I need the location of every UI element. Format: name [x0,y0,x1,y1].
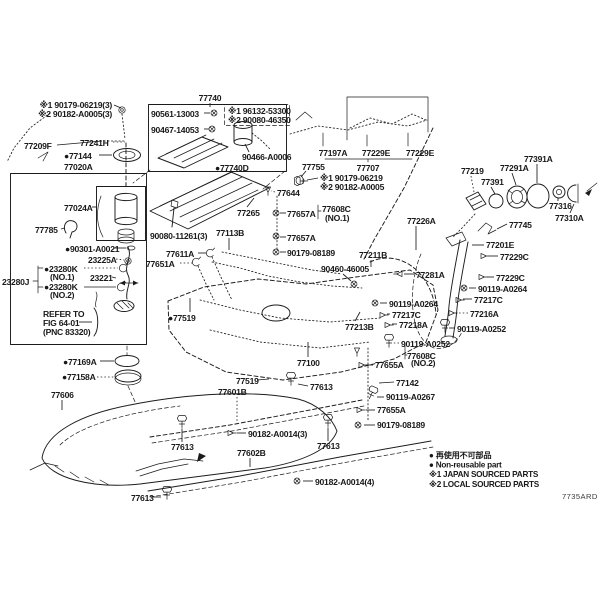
part-label: 77201E [486,240,515,250]
part-label: 77226A [407,216,436,226]
part-label: ●77519 [168,313,196,323]
part-label: 90179-08189 [377,420,425,430]
leader-line [379,382,394,383]
part-label: 23280J [2,277,30,287]
part-label: 77229E [362,148,391,158]
part-label: 77655A [375,360,404,370]
part-label: 77213B [345,322,374,332]
part-label: 77651A [146,259,175,269]
leader-line [271,191,275,192]
part-label: 77316 [549,201,572,211]
leader-line [298,384,308,386]
leader-line [497,224,507,229]
part-label: 90460-46005 [321,264,369,274]
part-label: 77216A [470,309,499,319]
part-label: 77217C [392,310,421,320]
filler-pipe-artwork [368,214,475,422]
part-label: (NO.1) [50,272,75,282]
clip-icon [357,407,365,412]
part-label: 90182-A0014(3) [248,429,307,439]
bolt-icon [384,335,393,348]
clamp-icon [119,263,127,272]
clip-icon [481,253,489,258]
leader-line [512,173,516,185]
part-label: 77291A [500,163,529,173]
gaskets-artwork [115,345,407,404]
legend-row: ※2 LOCAL SOURCED PARTS [429,479,540,489]
clip-icon [479,274,487,279]
bolt-icon [365,385,379,401]
bolt-icon [177,416,186,429]
clip-icon [359,362,367,367]
clip-icon [380,312,388,317]
clip-icon [354,348,359,356]
part-label: 90119-A0264 [478,284,527,294]
part-label: 77740 [199,93,222,103]
screw-icon [273,249,279,255]
leader-line [257,379,269,380]
part-label: 77611A [166,249,194,259]
part-label: (PNC 83320) [43,327,91,337]
grommet-icon [119,107,125,113]
part-label: ※2 90182-A0005 [320,182,385,192]
screw-icon [273,233,279,239]
screw-icon [461,285,467,291]
part-label: 77657A [287,209,316,219]
legend-row: ● Non-reusable part [429,461,502,470]
part-label: 77391 [481,177,504,187]
part-label: 77310A [555,213,584,223]
part-label: ※2 90080-46350 [228,115,291,125]
part-label: 90119-A0267 [386,392,435,402]
part-label: 77601B [218,387,247,397]
part-label: ●90301-A0021 [65,244,120,254]
part-label: 77113B [216,228,244,238]
part-label: 77644 [277,188,300,198]
part-label: ●77158A [62,372,96,382]
part-label: 77707 [357,163,380,173]
part-label: 23225A [88,255,117,265]
part-label: 77241H [80,138,109,148]
part-label: 77219 [461,166,484,176]
heat-shield-77265 [150,172,269,229]
part-label: 77519 [236,376,259,386]
diagram-legend: ● 再使用不可部品● Non-reusable part※1 JAPAN SOU… [429,450,540,489]
screw-icon [355,422,361,428]
part-label: 77613 [171,442,194,452]
part-label: 77602B [237,448,266,458]
part-label: 77785 [35,225,58,235]
part-label: 77265 [237,208,260,218]
part-label: 90119-A0264 [389,299,438,309]
part-label: ●77144 [64,151,92,161]
legend-row: ※1 JAPAN SOURCED PARTS [429,469,539,479]
part-label: 77657A [287,233,316,243]
part-label: 77745 [509,220,532,230]
part-label: 90182-A0014(4) [315,477,374,487]
part-label: 90561-13003 [151,109,199,119]
leader-line [307,178,318,180]
leader-line [491,187,495,194]
screw-icon [351,281,357,287]
part-label: ※2 90182-A0005(3) [38,109,112,119]
part-label: 77655A [377,405,406,415]
legend-row: ● 再使用不可部品 [429,450,491,460]
screw-icon [211,110,217,116]
figure-code: 7735ARD [562,492,598,501]
part-label: ●77169A [63,357,97,367]
leader-line [116,259,124,260]
lower-shield-77606 [30,394,337,485]
leader-line [471,176,474,192]
part-label: 77613 [317,441,340,451]
part-label: 77211B [359,250,387,260]
screw-icon [209,126,215,132]
part-labels: ※1 90179-06219(3)※2 90182-A0005(3)77209F… [2,93,584,503]
part-label: ●77740D [215,163,249,173]
part-label: (NO.1) [325,213,350,223]
part-label: 77024A [64,203,93,213]
part-label: 77197A [319,148,348,158]
part-label: 77020A [64,162,93,172]
part-label: 77606 [51,390,74,400]
parts-diagram: ※1 90179-06219(3)※2 90182-A0005(3)77209F… [0,0,600,600]
part-label: 90119-A0252 [401,339,450,349]
clamp-icon [117,282,125,291]
diagram-canvas: ※1 90179-06219(3)※2 90182-A0005(3)77209F… [0,0,600,600]
part-label: (NO.2) [411,358,436,368]
part-label: 77229C [496,273,525,283]
part-label: 77218A [399,320,428,330]
part-label: 77613 [131,493,154,503]
part-label: 77613 [310,382,333,392]
part-label: 77281A [416,270,445,280]
part-label: 90119-A0252 [457,324,506,334]
part-label: (NO.2) [50,290,75,300]
part-label: 77100 [297,358,320,368]
part-label: 90467-14053 [151,125,199,135]
part-label: 77391A [524,154,553,164]
part-label: 77142 [396,378,419,388]
leader-line [247,198,254,207]
clip-icon [385,322,393,327]
bolt-icon [440,320,449,333]
part-label: 23221 [90,273,113,283]
screw-icon [294,478,300,484]
part-label: 90080-11261(3) [150,231,208,241]
clip-icon [456,297,464,302]
part-label: 77217C [474,295,503,305]
part-label: 77755 [302,162,325,172]
part-label: 77229C [500,252,529,262]
screw-icon [273,210,279,216]
screw-icon [372,300,378,306]
part-label: 77209F [24,141,52,151]
part-label: 90466-A0006 [242,152,292,162]
clamp-icon [206,248,214,257]
part-label: 77229E [406,148,435,158]
part-label: 90179-08189 [287,248,335,258]
